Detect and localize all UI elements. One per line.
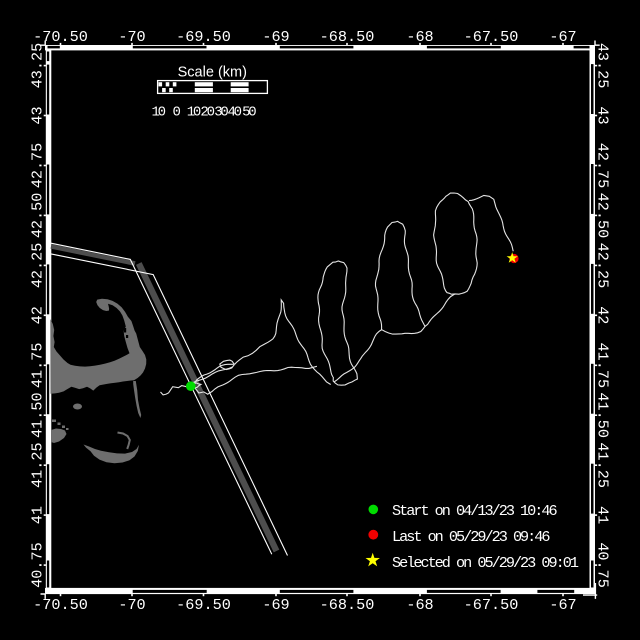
svg-text:-69.50: -69.50 [176, 596, 231, 614]
svg-text:10: 10 [151, 105, 165, 121]
svg-text:41.50: 41.50 [28, 392, 46, 438]
svg-text:41.25: 41.25 [593, 442, 611, 488]
svg-text:-67: -67 [549, 28, 576, 46]
svg-text:-70: -70 [118, 596, 145, 614]
svg-text:-69: -69 [262, 596, 289, 614]
svg-text:42: 42 [28, 306, 46, 324]
svg-text:42: 42 [593, 306, 611, 324]
svg-text:40.75: 40.75 [593, 542, 611, 588]
svg-text:42.50: 42.50 [28, 193, 46, 239]
svg-text:-70.50: -70.50 [33, 596, 88, 614]
svg-text:-69.50: -69.50 [176, 28, 231, 46]
svg-text:42.25: 42.25 [28, 243, 46, 289]
svg-text:Selected on 05/29/23 09:01: Selected on 05/29/23 09:01 [392, 554, 579, 572]
svg-text:Scale (km): Scale (km) [178, 65, 247, 81]
svg-text:-67: -67 [549, 596, 576, 614]
svg-text:-70: -70 [118, 28, 145, 46]
svg-text:-67.50: -67.50 [464, 28, 519, 46]
svg-text:43: 43 [28, 106, 46, 124]
svg-text:40: 40 [227, 105, 241, 121]
svg-text:40.75: 40.75 [28, 542, 46, 588]
svg-text:-68: -68 [406, 28, 433, 46]
svg-text:41.75: 41.75 [593, 343, 611, 389]
svg-text:41.75: 41.75 [28, 343, 46, 389]
svg-text:30: 30 [214, 105, 228, 121]
svg-text:Last on 05/29/23 09:46: Last on 05/29/23 09:46 [392, 528, 550, 546]
svg-text:41: 41 [593, 506, 611, 524]
svg-text:-69: -69 [262, 28, 289, 46]
svg-text:-68.50: -68.50 [320, 28, 375, 46]
svg-text:Start on 04/13/23 10:46: Start on 04/13/23 10:46 [392, 502, 558, 520]
svg-text:10: 10 [187, 105, 201, 121]
svg-text:43.25: 43.25 [593, 43, 611, 89]
svg-text:41: 41 [28, 506, 46, 524]
svg-text:43: 43 [593, 106, 611, 124]
svg-text:50: 50 [242, 105, 256, 121]
svg-text:42.50: 42.50 [593, 193, 611, 239]
svg-text:41.25: 41.25 [28, 442, 46, 488]
svg-text:42.75: 42.75 [593, 143, 611, 189]
svg-text:20: 20 [200, 105, 214, 121]
svg-text:42.25: 42.25 [593, 243, 611, 289]
svg-text:-68: -68 [406, 596, 433, 614]
svg-text:42.75: 42.75 [28, 143, 46, 189]
svg-text:43.25: 43.25 [28, 43, 46, 89]
svg-text:-67.50: -67.50 [464, 596, 519, 614]
svg-text:41.50: 41.50 [593, 392, 611, 438]
svg-text:-68.50: -68.50 [320, 596, 375, 614]
